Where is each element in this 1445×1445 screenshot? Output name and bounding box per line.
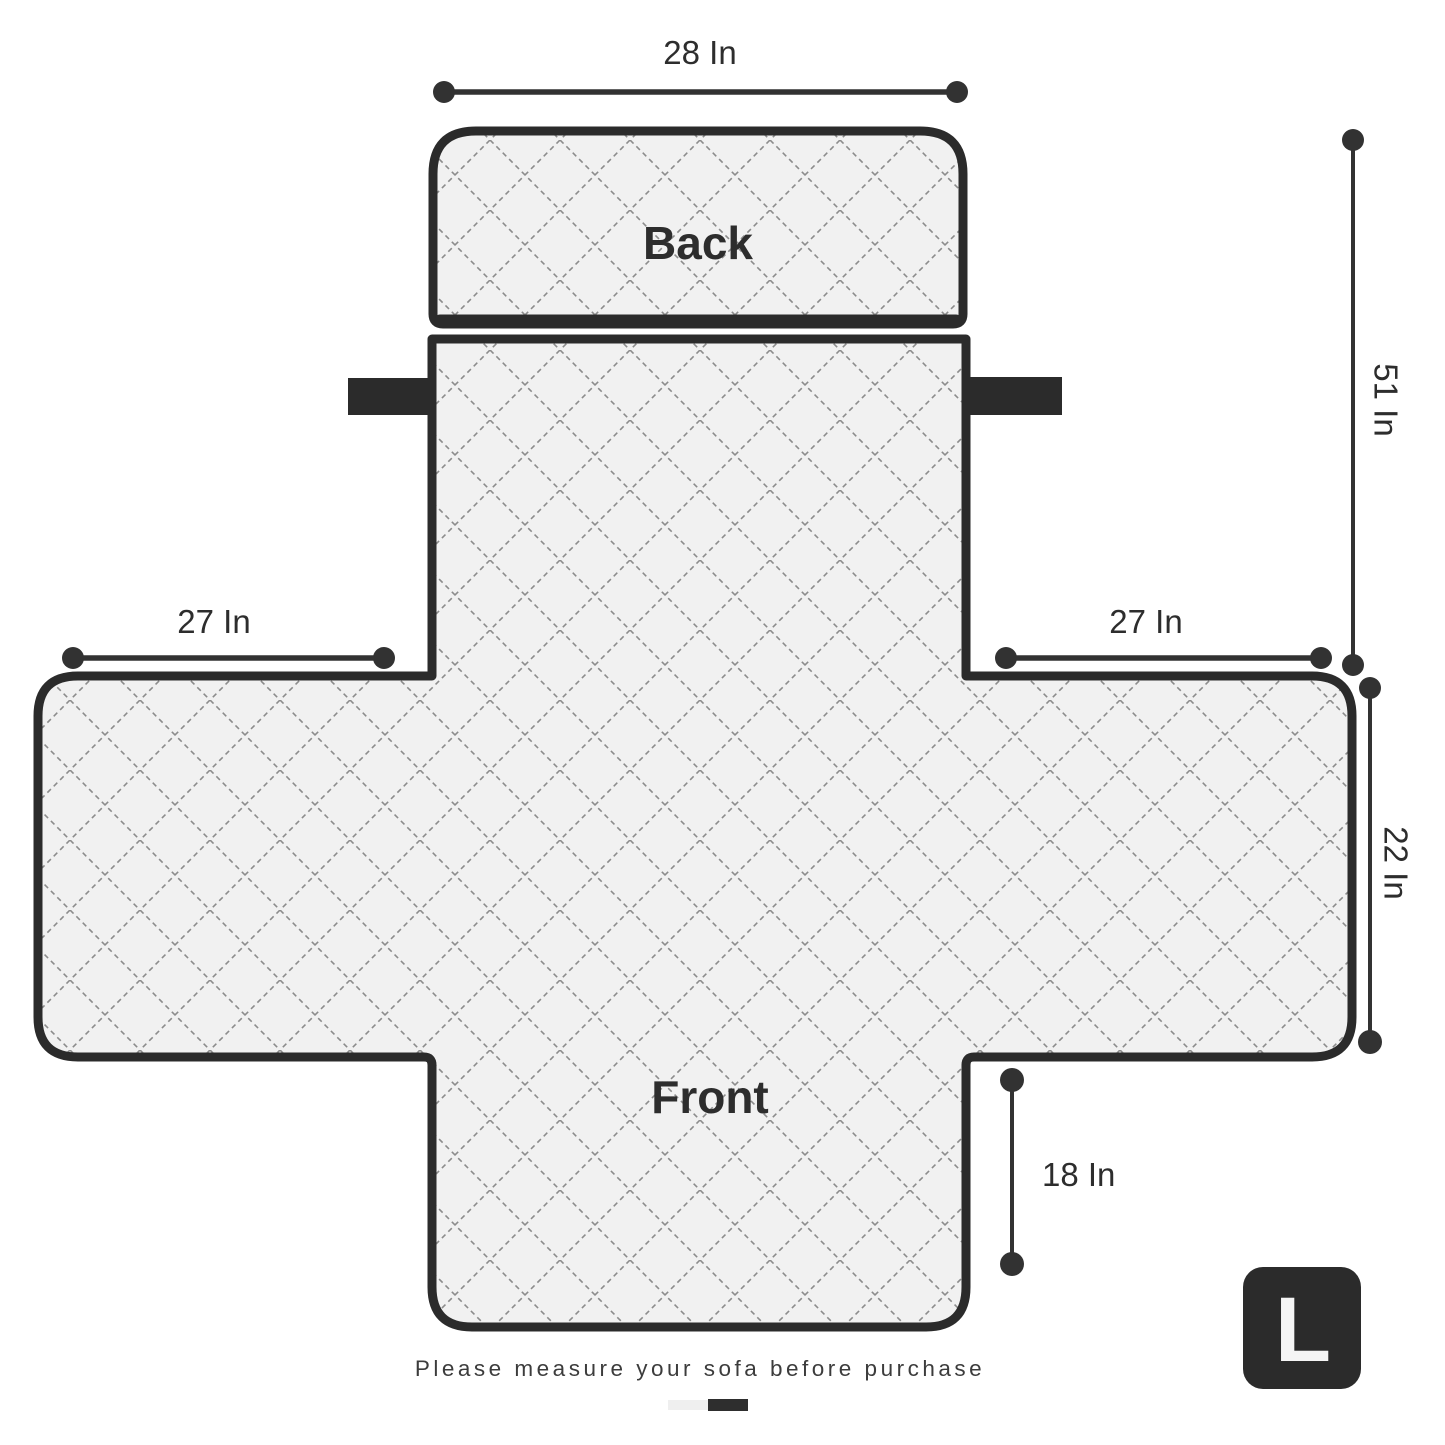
dim-side-height: 22 In bbox=[1358, 677, 1415, 1054]
strap-right bbox=[962, 377, 1062, 415]
dim-endpoint-dot bbox=[62, 647, 84, 669]
dim-right-arm: 27 In bbox=[995, 603, 1332, 669]
dim-front-skirt: 18 In bbox=[1000, 1068, 1115, 1276]
seat-cover-shape bbox=[38, 339, 1352, 1327]
size-badge-letter: L bbox=[1275, 1279, 1331, 1381]
strap-left bbox=[348, 378, 438, 415]
dim-back-width: 28 In bbox=[433, 34, 968, 103]
carousel-indicator-active[interactable] bbox=[708, 1399, 748, 1411]
dim-back-width-label: 28 In bbox=[663, 34, 736, 71]
dim-total-height: 51 In bbox=[1342, 129, 1405, 676]
dim-endpoint-dot bbox=[373, 647, 395, 669]
dim-endpoint-dot bbox=[946, 81, 968, 103]
dim-left-arm-label: 27 In bbox=[177, 603, 250, 640]
carousel-indicator-inactive[interactable] bbox=[668, 1400, 708, 1410]
dim-endpoint-dot bbox=[1310, 647, 1332, 669]
dim-left-arm: 27 In bbox=[62, 603, 395, 669]
dim-front-skirt-label: 18 In bbox=[1042, 1156, 1115, 1193]
dim-endpoint-dot bbox=[1359, 677, 1381, 699]
dim-endpoint-dot bbox=[433, 81, 455, 103]
back-panel: Back bbox=[433, 131, 963, 324]
dim-endpoint-dot bbox=[995, 647, 1017, 669]
dim-endpoint-dot bbox=[1000, 1252, 1024, 1276]
front-label: Front bbox=[651, 1071, 769, 1123]
sofa-cover-size-diagram: Back Front 28 In 51 In 27 In bbox=[0, 0, 1445, 1445]
diagram-canvas: Back Front 28 In 51 In 27 In bbox=[0, 0, 1445, 1445]
dim-endpoint-dot bbox=[1000, 1068, 1024, 1092]
dim-side-height-label: 22 In bbox=[1378, 826, 1415, 899]
seat-cover: Front bbox=[38, 339, 1352, 1327]
footer-note: Please measure your sofa before purchase bbox=[415, 1356, 985, 1381]
dim-endpoint-dot bbox=[1342, 654, 1364, 676]
back-label: Back bbox=[643, 217, 753, 269]
size-badge: L bbox=[1243, 1267, 1361, 1389]
dim-total-height-label: 51 In bbox=[1368, 363, 1405, 436]
dim-endpoint-dot bbox=[1358, 1030, 1382, 1054]
dim-right-arm-label: 27 In bbox=[1109, 603, 1182, 640]
dim-endpoint-dot bbox=[1342, 129, 1364, 151]
